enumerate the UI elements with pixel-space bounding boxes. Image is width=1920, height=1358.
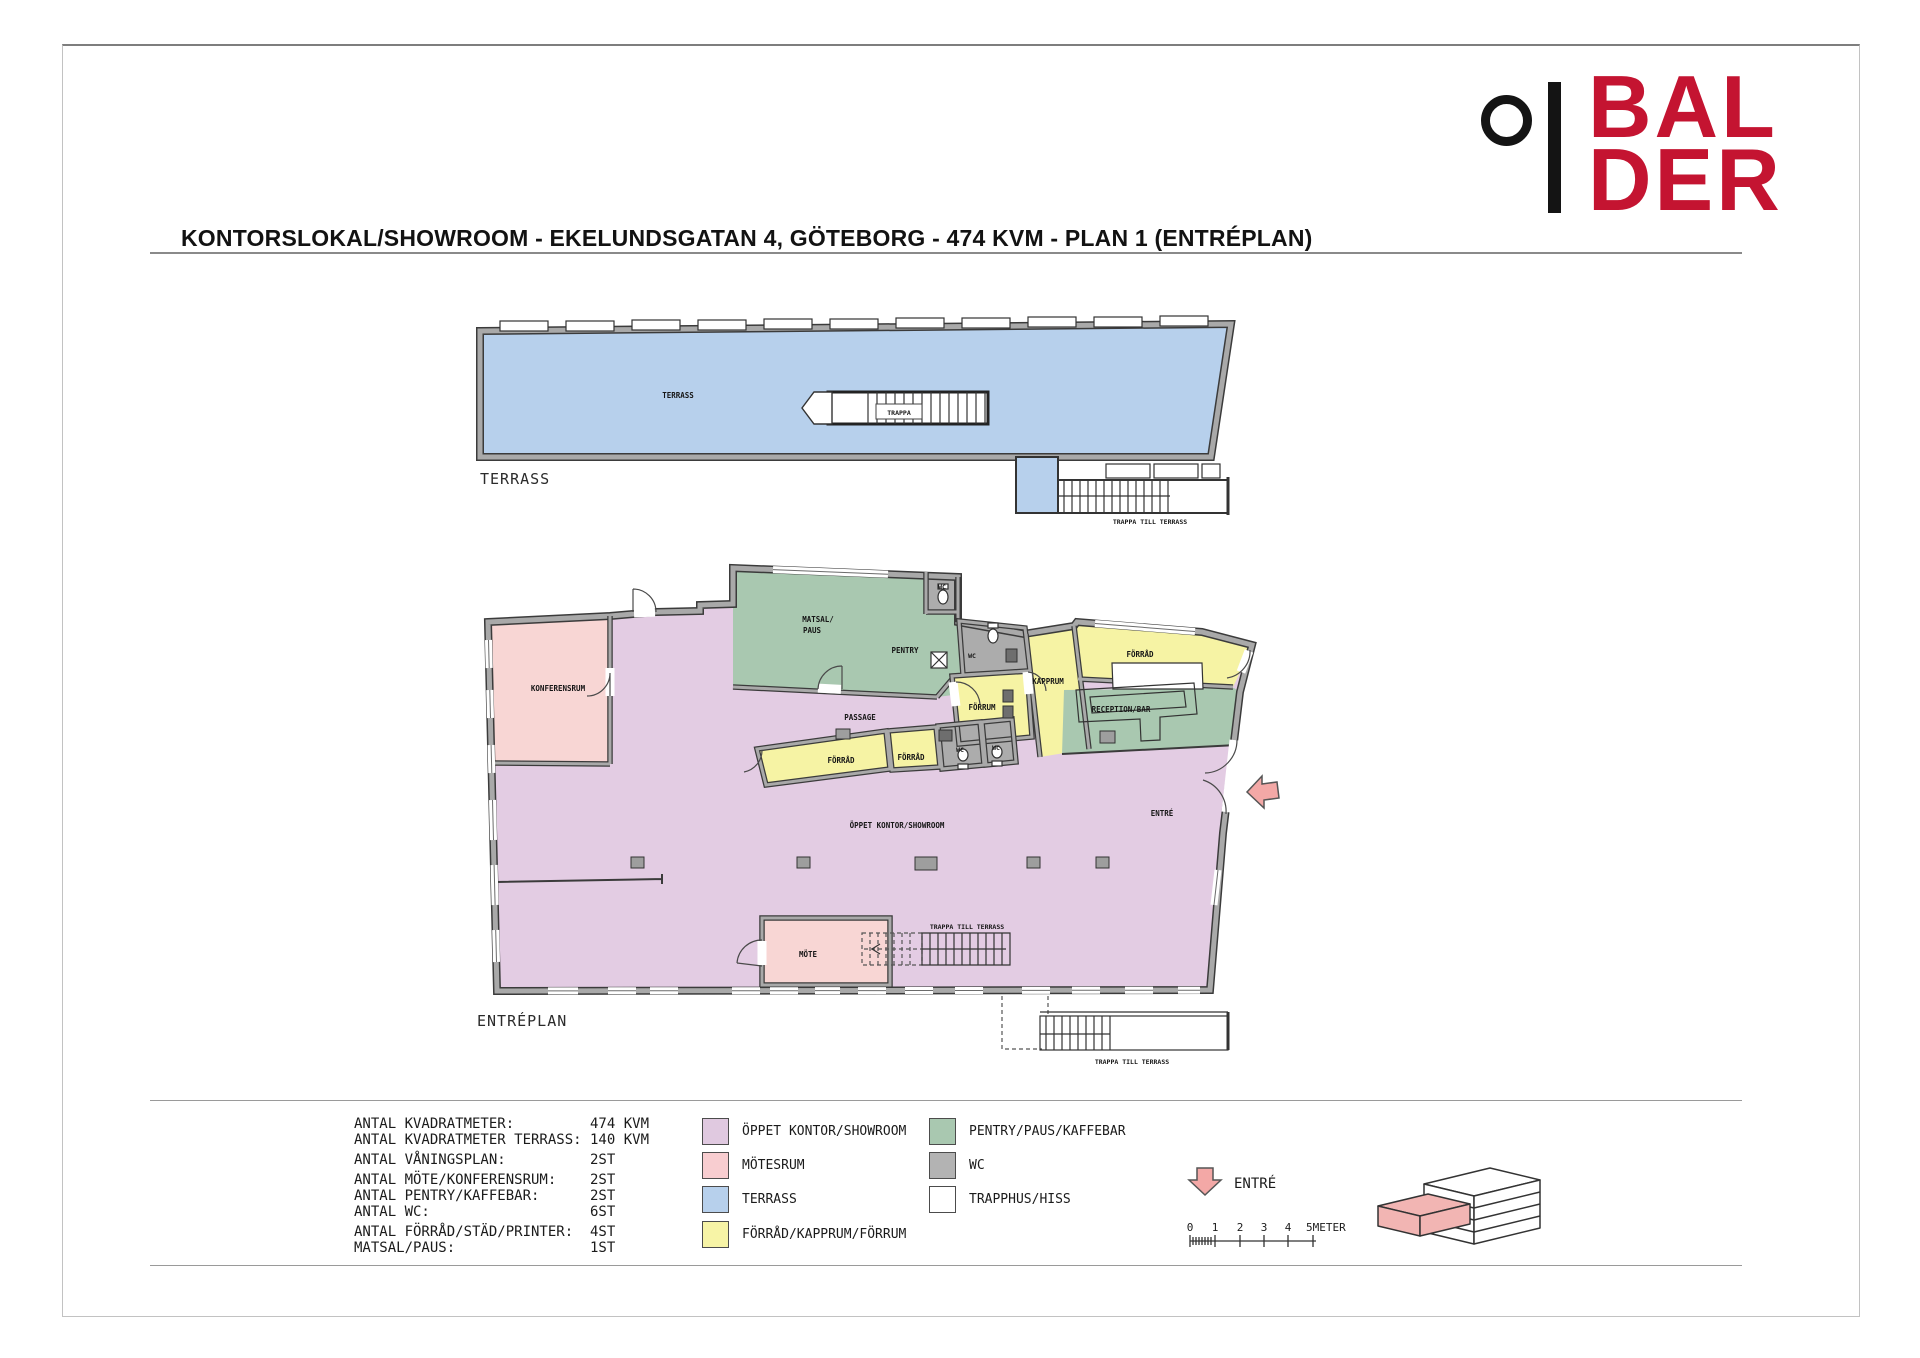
label-matsal-1: MATSAL/: [802, 615, 834, 624]
legend-item-trapphus: TRAPPHUS/HISS: [929, 1186, 1071, 1213]
label-forrad-1: FÖRRÅD: [827, 756, 855, 765]
terrace-access-stair: TRAPPA TILL TERRASS: [1016, 457, 1228, 526]
label-mote: MÖTE: [799, 950, 818, 959]
label-wc-2: WC: [968, 652, 976, 660]
stat-label: ANTAL PENTRY/KAFFEBAR:: [354, 1188, 590, 1204]
stat-label: ANTAL FÖRRÅD/STÄD/PRINTER:: [354, 1224, 590, 1240]
stat-row: ANTAL VÅNINGSPLAN:2ST: [354, 1152, 649, 1168]
stat-row: ANTAL WC:6ST: [354, 1204, 649, 1220]
lower-stair-caption: TRAPPA TILL TERRASS: [1095, 1058, 1169, 1066]
legend-swatch-trapphus: [929, 1186, 956, 1213]
terrace-caption: TERRASS: [480, 470, 550, 488]
scale-tick-1: 1: [1212, 1221, 1219, 1234]
label-forrad-nord: FÖRRÅD: [1126, 650, 1154, 659]
entry-arrow-icon: [1247, 776, 1279, 808]
stat-value: 2ST: [590, 1172, 615, 1188]
stat-row: ANTAL KVADRATMETER TERRASS:140 KVM: [354, 1132, 649, 1148]
stat-row: ANTAL MÖTE/KONFERENSRUM:2ST: [354, 1172, 649, 1188]
scale-tick-3: 3: [1261, 1221, 1268, 1234]
scale-tick-0: 0: [1187, 1221, 1194, 1234]
footer-divider-bottom: [150, 1265, 1742, 1266]
label-pentry: PENTRY: [891, 646, 919, 655]
legend-swatch-forrad: [702, 1221, 729, 1248]
label-reception: RECEPTION/BAR: [1092, 705, 1151, 714]
stat-label: MATSAL/PAUS:: [354, 1240, 590, 1256]
stat-label: ANTAL KVADRATMETER:: [354, 1116, 590, 1132]
legend-item-wc: WC: [929, 1152, 985, 1179]
stat-value: 474 KVM: [590, 1116, 649, 1132]
legend-item-pentry: PENTRY/PAUS/KAFFEBAR: [929, 1118, 1126, 1145]
scale-bar: 0 1 2 3 4 5METER: [1187, 1221, 1346, 1247]
stat-row: ANTAL FÖRRÅD/STÄD/PRINTER:4ST: [354, 1224, 649, 1240]
legend-swatch-motesrum: [702, 1152, 729, 1179]
stat-label: ANTAL WC:: [354, 1204, 590, 1220]
scale-tick-4: 4: [1285, 1221, 1292, 1234]
legend-swatch-wc: [929, 1152, 956, 1179]
legend-entry-label: ENTRÉ: [1234, 1176, 1276, 1192]
stat-value: 2ST: [590, 1188, 615, 1204]
stat-label: ANTAL VÅNINGSPLAN:: [354, 1152, 590, 1168]
scale-end-label: 5METER: [1306, 1221, 1346, 1234]
label-wc-3: WC: [956, 746, 964, 754]
stat-value: 4ST: [590, 1224, 615, 1240]
legend-label: ÖPPET KONTOR/SHOWROOM: [742, 1124, 906, 1139]
legend-label: MÖTESRUM: [742, 1158, 805, 1173]
legend-item-terrass: TERRASS: [702, 1186, 797, 1213]
label-kapprum: KAPPRUM: [1032, 677, 1064, 686]
stat-value: 6ST: [590, 1204, 615, 1220]
legend-label: TERRASS: [742, 1192, 797, 1207]
label-entre: ENTRÉ: [1151, 809, 1174, 818]
legend-swatch-pentry: [929, 1118, 956, 1145]
label-wc-4: WC: [992, 744, 1000, 752]
room-forrad-2: [888, 727, 940, 770]
stat-value: 2ST: [590, 1152, 615, 1168]
terrace-access-caption: TRAPPA TILL TERRASS: [1113, 518, 1187, 526]
terrace-plan: TRAPPA TERRASS TRAPPA TILL TERRASS: [480, 316, 1231, 526]
stat-value: 1ST: [590, 1240, 615, 1256]
stat-label: ANTAL MÖTE/KONFERENSRUM:: [354, 1172, 590, 1188]
label-open-office: ÖPPET KONTOR/SHOWROOM: [850, 821, 945, 830]
label-passage: PASSAGE: [844, 713, 876, 722]
stat-value: 140 KVM: [590, 1132, 649, 1148]
footer-divider-top: [150, 1100, 1742, 1101]
stat-row: MATSAL/PAUS:1ST: [354, 1240, 649, 1256]
lower-stair: TRAPPA TILL TERRASS: [1002, 996, 1228, 1066]
legend-swatch-open-office: [702, 1118, 729, 1145]
stat-label: ANTAL KVADRATMETER TERRASS:: [354, 1132, 590, 1148]
label-forrum: FÖRRUM: [968, 703, 996, 712]
legend-label: PENTRY/PAUS/KAFFEBAR: [969, 1124, 1126, 1139]
terrace-stair: TRAPPA: [802, 392, 988, 424]
label-wc-1: WC: [938, 583, 946, 591]
legend-item-forrad: FÖRRÅD/KAPPRUM/FÖRRUM: [702, 1221, 906, 1248]
legend-label: TRAPPHUS/HISS: [969, 1192, 1071, 1207]
stat-row: ANTAL PENTRY/KAFFEBAR:2ST: [354, 1188, 649, 1204]
label-forrad-2: FÖRRÅD: [897, 753, 925, 762]
stat-row: ANTAL KVADRATMETER:474 KVM: [354, 1116, 649, 1132]
legend-item-motesrum: MÖTESRUM: [702, 1152, 805, 1179]
entrance-plan: TRAPPA TILL TERRASS KONFERENSRUM MATSAL/…: [488, 568, 1279, 1066]
entrance-caption: ENTRÉPLAN: [477, 1012, 567, 1030]
building-floors-icon: [1378, 1168, 1540, 1244]
terrace-room-label: TERRASS: [662, 391, 694, 400]
legend-label: FÖRRÅD/KAPPRUM/FÖRRUM: [742, 1227, 906, 1242]
legend-swatch-terrass: [702, 1186, 729, 1213]
label-matsal-2: PAUS: [803, 626, 822, 635]
terrace-stair-label: TRAPPA: [887, 409, 911, 417]
legend-entry-arrow-icon: [1189, 1168, 1221, 1195]
stats-block: ANTAL KVADRATMETER:474 KVM ANTAL KVADRAT…: [354, 1116, 649, 1256]
label-showroom-stair: TRAPPA TILL TERRASS: [930, 923, 1004, 931]
scale-tick-2: 2: [1237, 1221, 1244, 1234]
legend-label: WC: [969, 1158, 985, 1173]
legend-item-open-office: ÖPPET KONTOR/SHOWROOM: [702, 1118, 906, 1145]
label-konferensrum: KONFERENSRUM: [531, 684, 586, 693]
room-mote: [762, 918, 890, 985]
